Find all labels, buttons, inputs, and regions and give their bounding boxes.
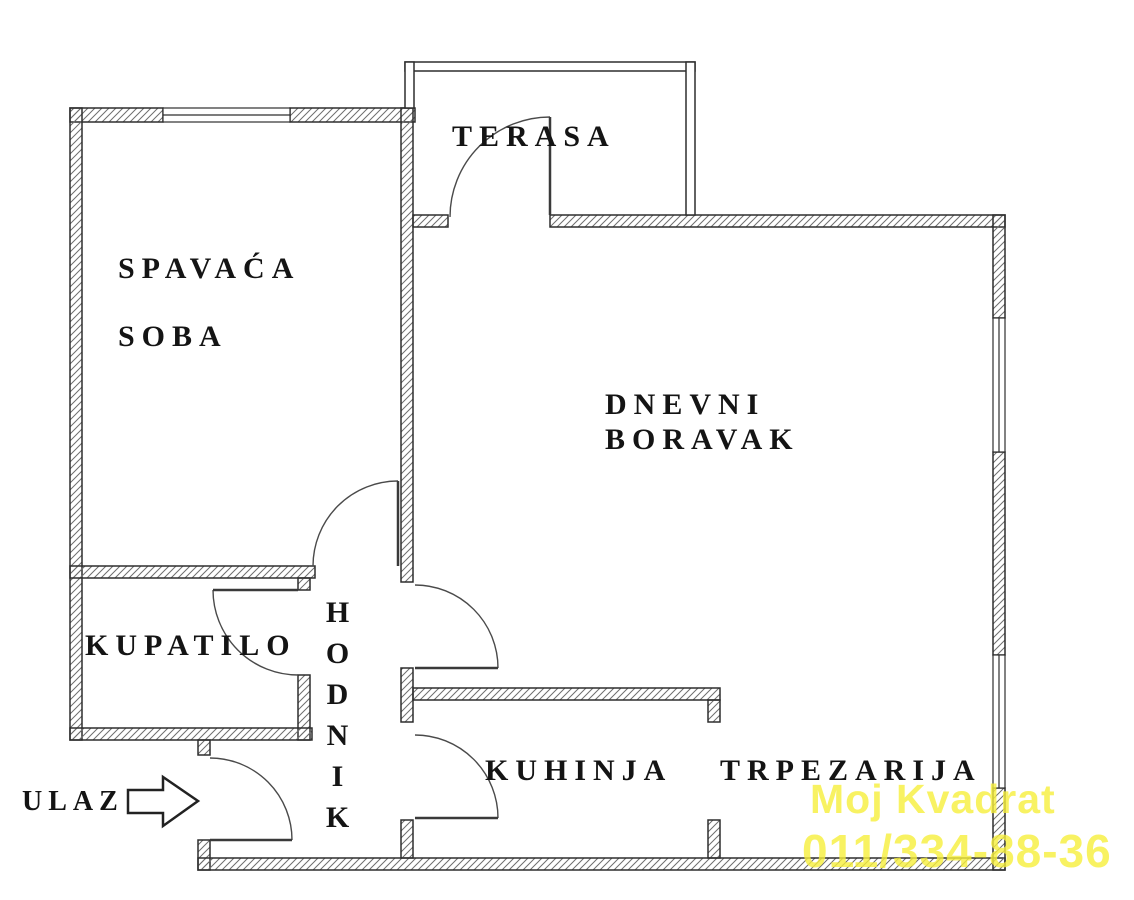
wall-terrace-north (405, 62, 695, 71)
wall-bathroom-south (70, 728, 312, 740)
label-kuhinja: KUHINJA (485, 756, 672, 786)
bedroom-window (163, 108, 290, 122)
wall-entry-top-stub (198, 740, 210, 755)
wall-living-north-left (413, 215, 448, 227)
label-terasa: TERASA (452, 122, 616, 152)
label-kupatilo: KUPATILO (85, 631, 297, 661)
wall-east-top (993, 215, 1005, 318)
living-window-upper (993, 318, 1005, 452)
watermark-phone-number: 011/334-88-36 (802, 828, 1112, 874)
wall-partition-top-stub (708, 700, 720, 722)
wall-central-upper (401, 108, 413, 582)
wall-bedroom-top-right (290, 108, 415, 122)
living-door-arc (415, 585, 498, 668)
wall-partition-bottom-stub (708, 820, 720, 858)
watermark-agency-name: Moj Kvadrat (810, 779, 1056, 820)
label-dnevni-boravak-line1: DNEVNI (605, 390, 765, 420)
entrance-arrow-icon (128, 777, 198, 826)
wall-terrace-east (686, 62, 695, 215)
label-spavaca-soba-line1: SPAVAĆA (118, 254, 300, 284)
wall-living-north-right (550, 215, 1005, 227)
label-spavaca-soba-line2: SOBA (118, 322, 228, 352)
entrance-door-arc (210, 758, 292, 840)
label-hodnik: HODNIK (322, 596, 352, 842)
wall-west (70, 108, 82, 740)
floor-plan: TERASA SPAVAĆA SOBA DNEVNI BORAVAK KUPAT… (0, 0, 1134, 900)
windows (163, 108, 1005, 788)
wall-kitchen-north (413, 688, 720, 700)
wall-central-lower (401, 820, 413, 858)
wall-terrace-west (405, 62, 414, 108)
wall-east-mid (993, 452, 1005, 655)
wall-bathroom-east-top (298, 578, 310, 590)
dining-window (993, 655, 1005, 788)
wall-bedroom-top-left (70, 108, 163, 122)
label-dnevni-boravak-line2: BORAVAK (605, 425, 800, 455)
bedroom-door-arc (313, 481, 398, 566)
wall-central-mid (401, 668, 413, 722)
wall-bedroom-bathroom (70, 566, 315, 578)
label-ulaz: ULAZ (22, 788, 124, 816)
